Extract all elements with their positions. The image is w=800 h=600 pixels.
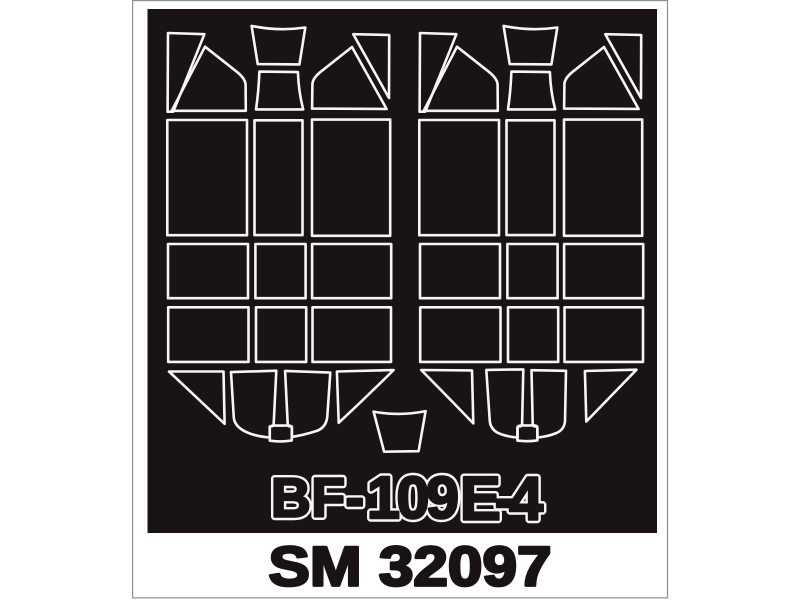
svg-text:E-4: E-4 — [460, 464, 543, 532]
svg-text:BF-: BF- — [271, 467, 364, 529]
svg-text:109: 109 — [367, 465, 459, 531]
svg-text:SM 32097: SM 32097 — [269, 535, 552, 598]
